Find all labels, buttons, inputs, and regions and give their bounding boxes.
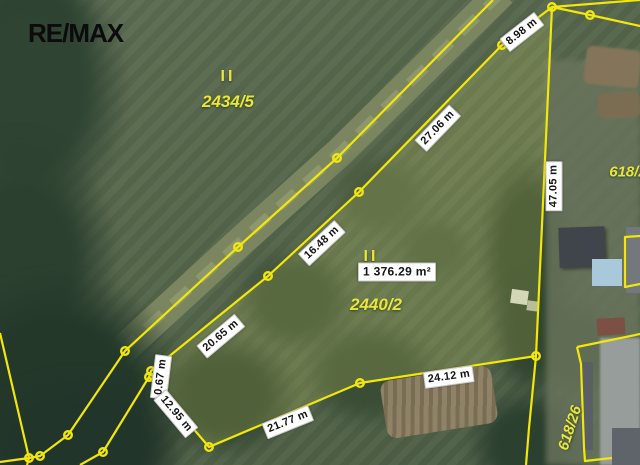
parcel-number-label: 2440/2 bbox=[350, 295, 402, 315]
map-labels: IIII8.98 m27.06 m16.48 m20.65 m0.67 m12.… bbox=[0, 0, 640, 465]
aerial-map: IIII8.98 m27.06 m16.48 m20.65 m0.67 m12.… bbox=[0, 0, 640, 465]
parcel-number-label: 618/2 bbox=[609, 164, 640, 181]
parcel-area-label: 1 376.29 m² bbox=[358, 263, 436, 282]
measurement-label: 24.12 m bbox=[423, 365, 475, 389]
remax-logo: RE/MAX bbox=[28, 18, 123, 49]
measurement-label: 16.48 m bbox=[298, 220, 347, 267]
parcel-number-label: 2434/5 bbox=[202, 92, 254, 112]
measurement-label: 21.77 m bbox=[261, 405, 314, 440]
measurement-label: 8.98 m bbox=[499, 12, 544, 53]
grassland-symbol: II bbox=[221, 68, 236, 86]
measurement-label: 20.65 m bbox=[196, 313, 246, 358]
measurement-label: 27.06 m bbox=[414, 104, 461, 152]
parcel-number-label: 618/26 bbox=[555, 404, 585, 453]
measurement-label: 47.05 m bbox=[546, 161, 563, 211]
measurement-label: 12.95 m bbox=[153, 389, 198, 439]
